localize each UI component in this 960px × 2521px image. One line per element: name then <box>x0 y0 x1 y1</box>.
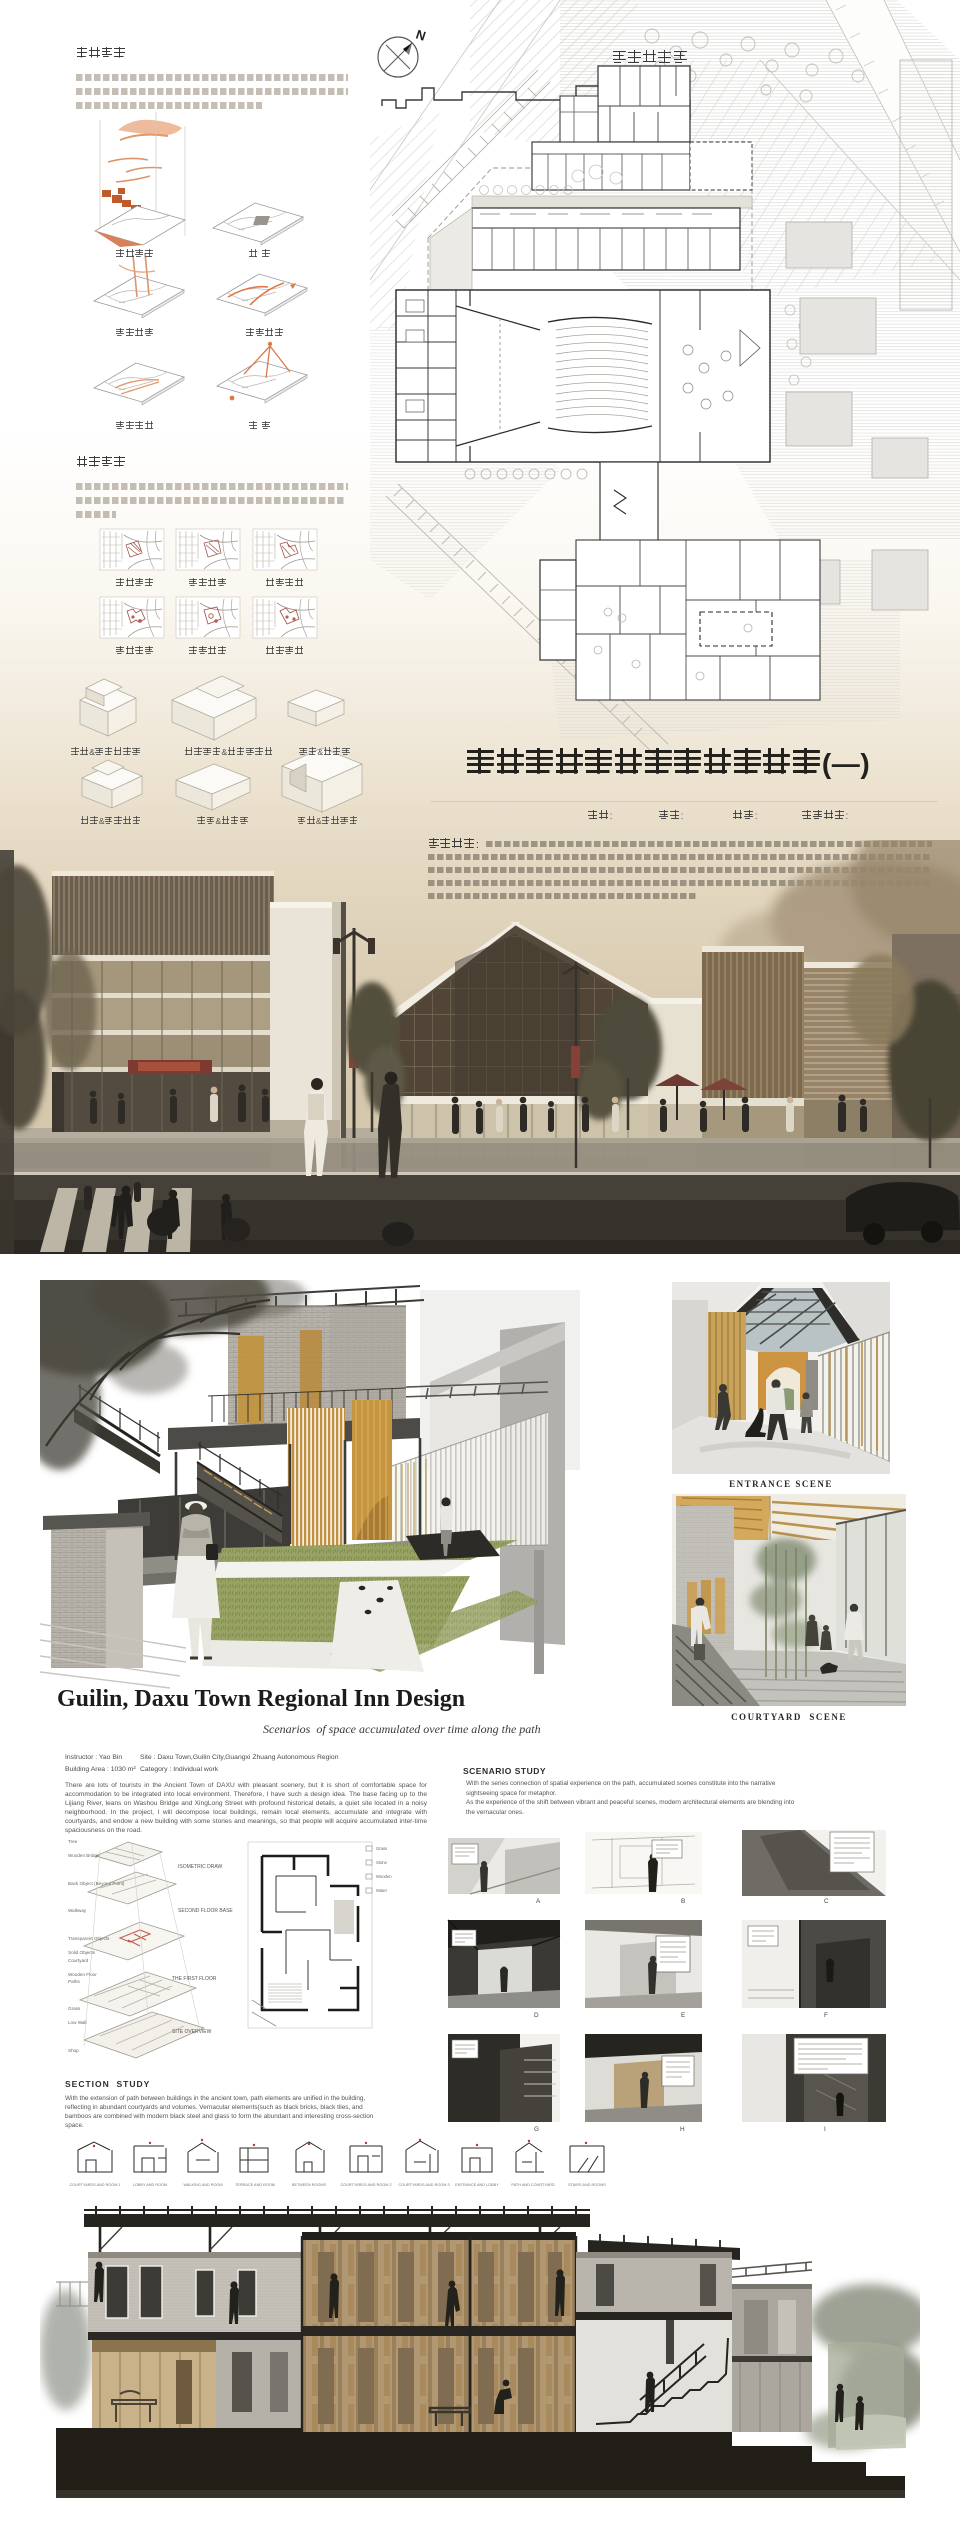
svg-text:Stone: Stone <box>376 1860 388 1865</box>
svg-text:B: B <box>681 1898 685 1905</box>
svg-text:Grass: Grass <box>68 2006 81 2011</box>
svg-text:Wooden Floor: Wooden Floor <box>68 1972 97 1977</box>
svg-text:I: I <box>824 2126 826 2133</box>
svg-text:H: H <box>680 2126 685 2133</box>
svg-text:THE FIRST FLOOR: THE FIRST FLOOR <box>172 1976 217 1982</box>
svg-text:Solid Objects: Solid Objects <box>68 1950 96 1955</box>
svg-text:G: G <box>534 2126 539 2133</box>
svg-text:Paths: Paths <box>68 1979 80 1984</box>
svg-text:Shop: Shop <box>68 2048 79 2053</box>
svg-text:C: C <box>824 1898 829 1905</box>
svg-text:Transparent Objects: Transparent Objects <box>68 1936 110 1941</box>
svg-text:ISOMETRIC DRAW: ISOMETRIC DRAW <box>178 1864 223 1870</box>
svg-text:N: N <box>414 27 428 44</box>
svg-text:Low Wall: Low Wall <box>68 2020 86 2025</box>
svg-text:D: D <box>534 2012 539 2019</box>
svg-text:Wooden: Wooden <box>376 1874 392 1879</box>
svg-text:Tree: Tree <box>68 1839 78 1844</box>
svg-text:F: F <box>824 2012 828 2019</box>
svg-text:Grass: Grass <box>376 1846 387 1851</box>
svg-text:Water: Water <box>376 1888 388 1893</box>
svg-text:E: E <box>681 2012 685 2019</box>
svg-text:A: A <box>536 1898 541 1905</box>
svg-text:SITE OVERVIEW: SITE OVERVIEW <box>172 2029 212 2035</box>
svg-text:Courtyard: Courtyard <box>68 1958 89 1963</box>
svg-text:Walkway: Walkway <box>68 1908 87 1913</box>
svg-text:Wooden Bridge: Wooden Bridge <box>68 1853 100 1858</box>
svg-text:SECOND FLOOR BASE: SECOND FLOOR BASE <box>178 1908 233 1914</box>
svg-text:Back Object (Beyond Point): Back Object (Beyond Point) <box>68 1881 125 1886</box>
